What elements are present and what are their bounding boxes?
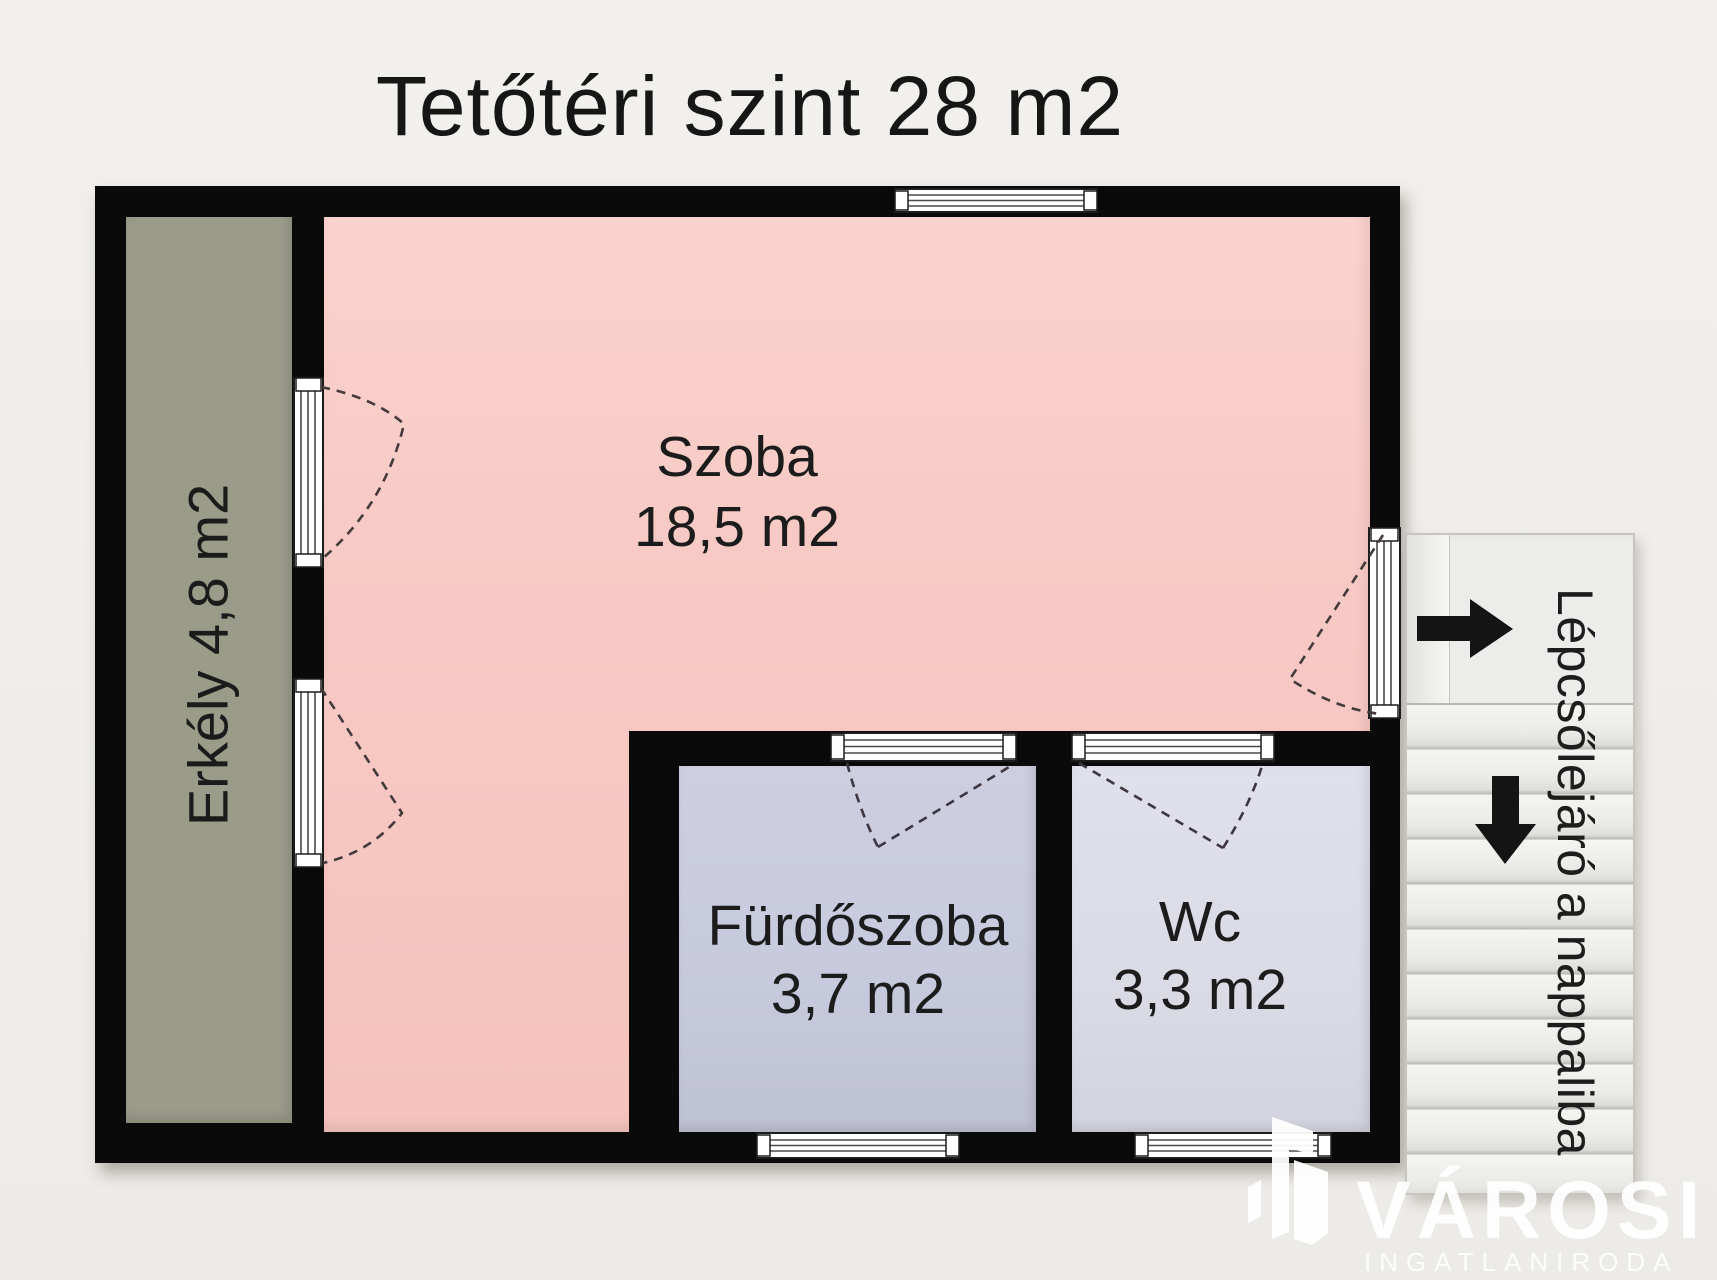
label-wc-area: 3,3 m2 (1050, 956, 1350, 1024)
label-wc-name: Wc (1050, 888, 1350, 956)
label-szoba-area: 18,5 m2 (527, 492, 947, 562)
watermark-brand: VÁROSI (1356, 1164, 1716, 1258)
watermark-subtitle: INGATLANIRODA (1364, 1247, 1704, 1278)
stair-landing (1407, 535, 1450, 703)
label-erkely-text: Erkély 4,8 m2 (176, 484, 241, 826)
label-furdoszoba-area: 3,7 m2 (660, 960, 1056, 1028)
label-staircase-text: Lépcsőlejáró a nappaliba (1546, 588, 1604, 1156)
label-furdoszoba: Fürdőszoba 3,7 m2 (660, 892, 1056, 1028)
floor-plan-page: Tetőtéri szint 28 m2 (0, 0, 1717, 1280)
page-title: Tetőtéri szint 28 m2 (95, 58, 1405, 155)
label-furdoszoba-name: Fürdőszoba (660, 892, 1056, 960)
label-wc: Wc 3,3 m2 (1050, 888, 1350, 1024)
label-szoba-name: Szoba (527, 422, 947, 492)
label-szoba: Szoba 18,5 m2 (527, 422, 947, 562)
